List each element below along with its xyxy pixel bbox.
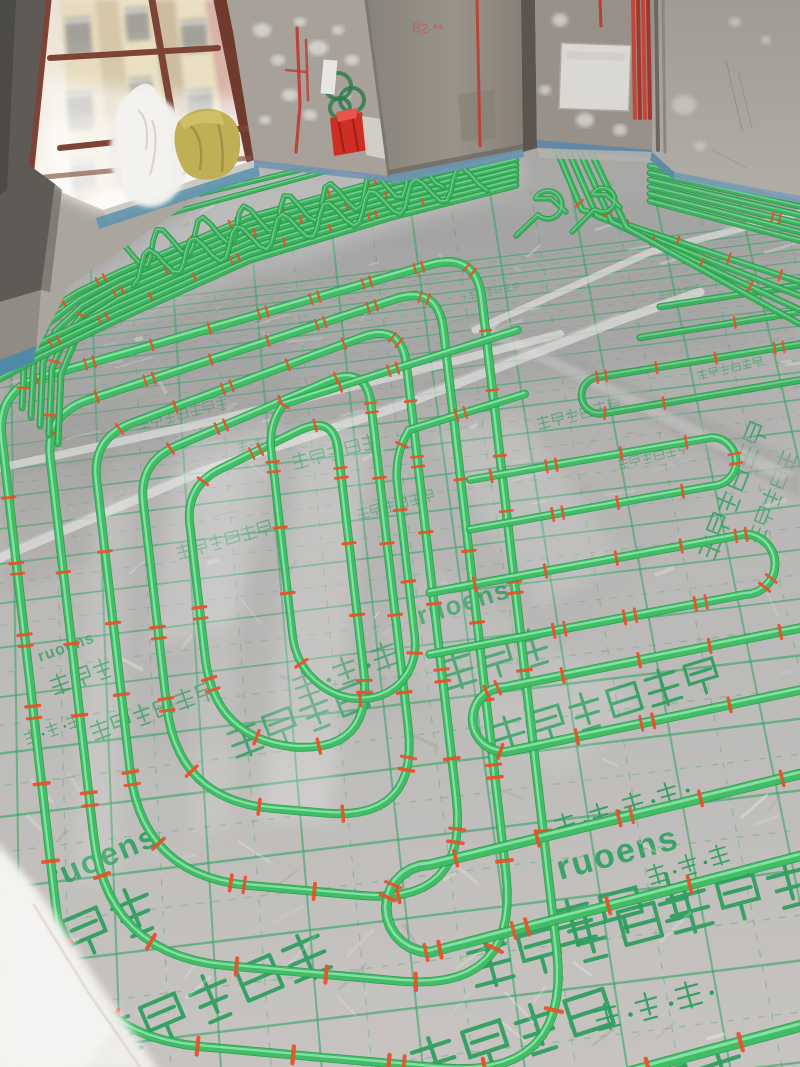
svg-text:B2-**: B2-** <box>412 20 443 37</box>
